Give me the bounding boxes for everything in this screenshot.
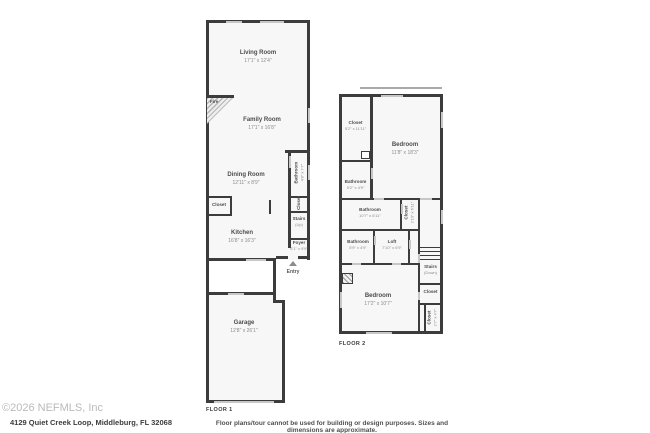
room-label-bedroom-top: Bedroom 11'8" x 18'3" [374,142,436,156]
wall [282,300,285,403]
room-name: Closet [296,190,302,216]
wall [206,20,310,23]
entry-label: Entry [279,269,307,275]
window-opening [260,21,284,23]
wall [298,256,310,259]
window-opening [441,210,443,224]
entry-arrow-icon [289,261,297,266]
wall [206,20,209,403]
property-address: 4129 Quiet Creek Loop, Middleburg, FL 32… [10,418,172,427]
room-label-closet-f1-left: Closet [206,202,232,208]
wall [339,160,373,162]
room-dims: 5'2" x 4'9" [339,185,372,190]
room-label-stairs-down: Stairs (Down) [419,264,442,275]
room-dims: 5'2" x 11'11" [339,126,372,131]
floor2-title: FLOOR 2 [339,341,366,347]
room-dims: 16'8" x 16'3" [210,238,274,245]
window-opening [308,108,310,123]
room-dims: 11'8" x 18'3" [374,150,436,157]
door-opening [420,198,432,200]
room-dims: 17'2" x 10'7" [347,301,409,308]
floor1-title: FLOOR 1 [206,407,233,413]
room-name: Kitchen [210,230,274,238]
room-label-bathroom-mid: Bathroom 10'7" x 6'11" [342,207,398,218]
room-name: Living Room [226,50,290,58]
room-label-bathroom-f1: Bathroom 4'8" x 7'7" [293,153,304,193]
wall [206,196,232,198]
room-label-closet-top: Closet 5'2" x 11'11" [339,120,372,131]
room-dims: 2'7" x 4'7" [432,302,437,334]
door-opening [392,263,401,265]
room-dims: 12'8" x 26'1" [212,328,276,335]
copyright-text: ©2026 NEFMLS, Inc [2,402,103,414]
fireplace-label: Fire [210,99,218,104]
garage-fill [207,294,274,401]
door-opening [352,263,361,265]
door-opening [289,156,291,168]
room-label-loft: Loft 7'10" x 6'9" [375,239,409,250]
room-label-closet-right1: Closet [419,289,442,295]
room-label-bathroom-lower: Bathroom 5'9" x 4'9" [341,239,375,250]
room-label-garage: Garage 12'8" x 26'1" [212,320,276,334]
wall [276,256,288,259]
room-dims: 2'10" x 6'11" [409,196,414,230]
room-label-closet-right2: Closet 2'7" x 4'7" [426,302,437,334]
window-opening [366,332,392,334]
room-dims: 17'1" x 16'8" [230,125,294,132]
door-opening [371,168,373,179]
wall [273,258,276,303]
room-dims: 5'9" x 4'9" [341,245,375,250]
wall [206,95,234,98]
door-opening [401,204,403,214]
room-label-bathroom-upper: Bathroom 5'2" x 4'9" [339,179,372,190]
room-dims: 7'10" x 6'9" [375,245,409,250]
room-name: Dining Room [214,172,278,180]
stairs-direction: (Down) [419,270,442,275]
room-label-family-room: Family Room 17'1" x 16'8" [230,117,294,131]
room-dims: 6'1" x 9'9" [283,246,315,251]
window-opening [381,95,403,97]
room-label-bedroom-bottom: Bedroom 17'2" x 10'7" [347,293,409,307]
stairs-direction: (Up) [288,222,310,227]
floorplan-sheet: Fire Living Room 17'1" x 12'4" [0,0,650,433]
room-name: Closet [419,289,442,295]
door-opening [246,259,266,261]
kitchen-island [269,200,271,214]
disclaimer-text: Floor plans/tour cannot be used for buil… [212,420,452,433]
room-dims: 4'8" x 7'7" [299,153,304,193]
stairs-treads [420,247,441,262]
window-opening [226,21,242,23]
room-name: Bedroom [374,142,436,150]
room-name: Closet [206,202,232,208]
room-label-closet-f1-right: Closet [296,190,302,216]
room-dims: 10'7" x 6'11" [342,213,398,218]
wall [400,198,402,231]
window-opening [441,112,443,128]
door-opening [374,198,384,200]
room-label-dining-room: Dining Room 12'11" x 8'9" [214,172,278,186]
door-jamb [361,151,370,159]
utility-hatch-icon [342,273,353,284]
door-opening [228,293,244,295]
room-name: Family Room [230,117,294,125]
wall [206,214,232,216]
roof-overhang-line [360,87,442,89]
room-label-foyer: Foyer 6'1" x 9'9" [283,240,315,251]
window-opening [340,292,342,308]
room-dims: 17'1" x 12'4" [226,58,290,65]
window-opening [308,165,310,180]
garage-door-opening [214,401,274,403]
room-label-closet-mid: Closet 2'10" x 6'11" [403,196,414,230]
room-name: Bedroom [347,293,409,301]
room-name: Garage [212,320,276,328]
room-label-living-room: Living Room 17'1" x 12'4" [226,50,290,64]
wall [418,283,443,285]
room-dims: 12'11" x 8'9" [214,180,278,187]
room-label-stairs-up: Stairs (Up) [288,216,310,227]
room-label-kitchen: Kitchen 16'8" x 16'3" [210,230,274,244]
